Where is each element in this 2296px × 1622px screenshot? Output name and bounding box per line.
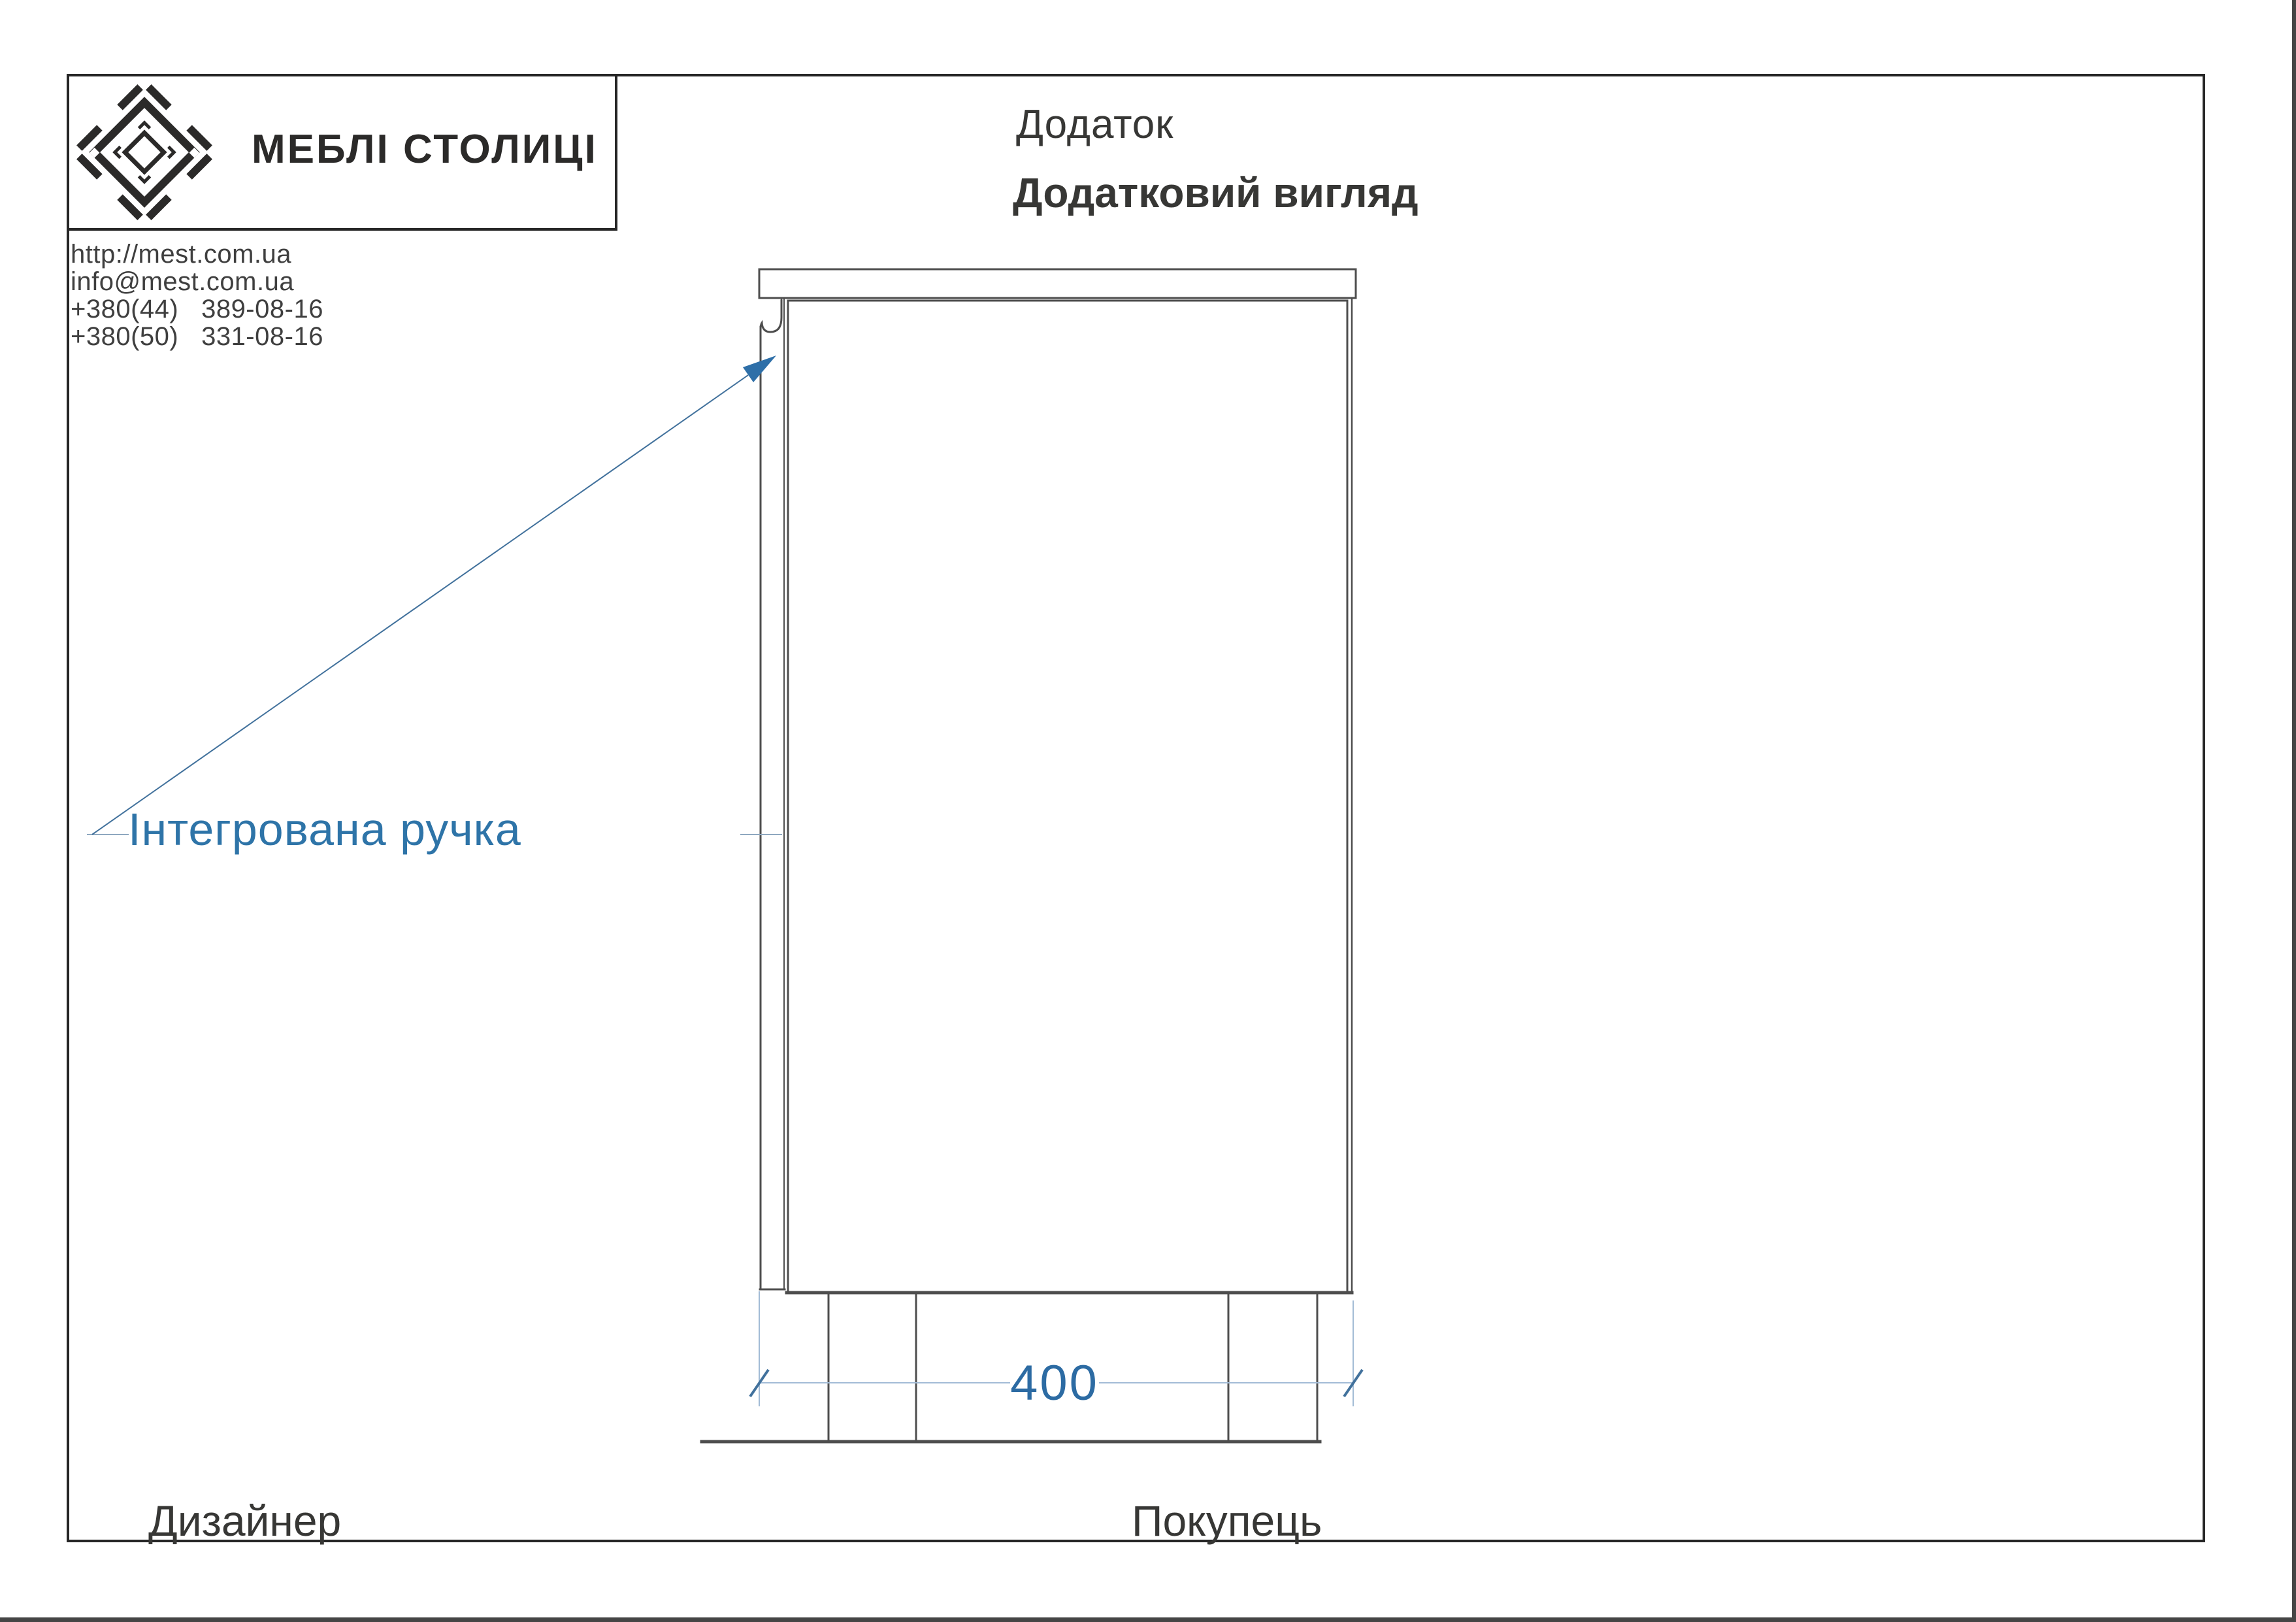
designer-signature-label: Дизайнер [148,1496,341,1546]
buyer-signature-label: Покупець [1132,1496,1322,1546]
integrated-handle-label: Інтегрована ручка [128,803,521,855]
leader-line [92,375,748,835]
leader-arrowhead [743,356,776,382]
drawing-sheet-page: { "header": { "logo": { "brand_text": "М… [0,0,2296,1622]
